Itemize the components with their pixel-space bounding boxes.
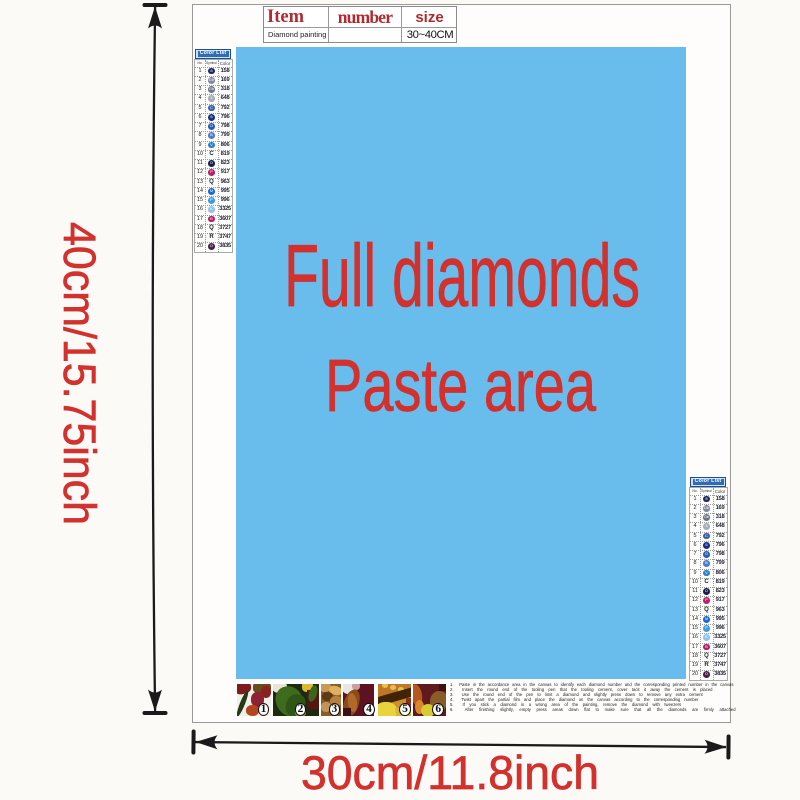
svg-text:30cm/11.8inch: 30cm/11.8inch (301, 746, 599, 799)
svg-text:40cm/15.75inch: 40cm/15.75inch (54, 222, 105, 525)
svg-text:Paste area: Paste area (325, 344, 597, 427)
svg-text:Full diamonds: Full diamonds (284, 226, 640, 325)
